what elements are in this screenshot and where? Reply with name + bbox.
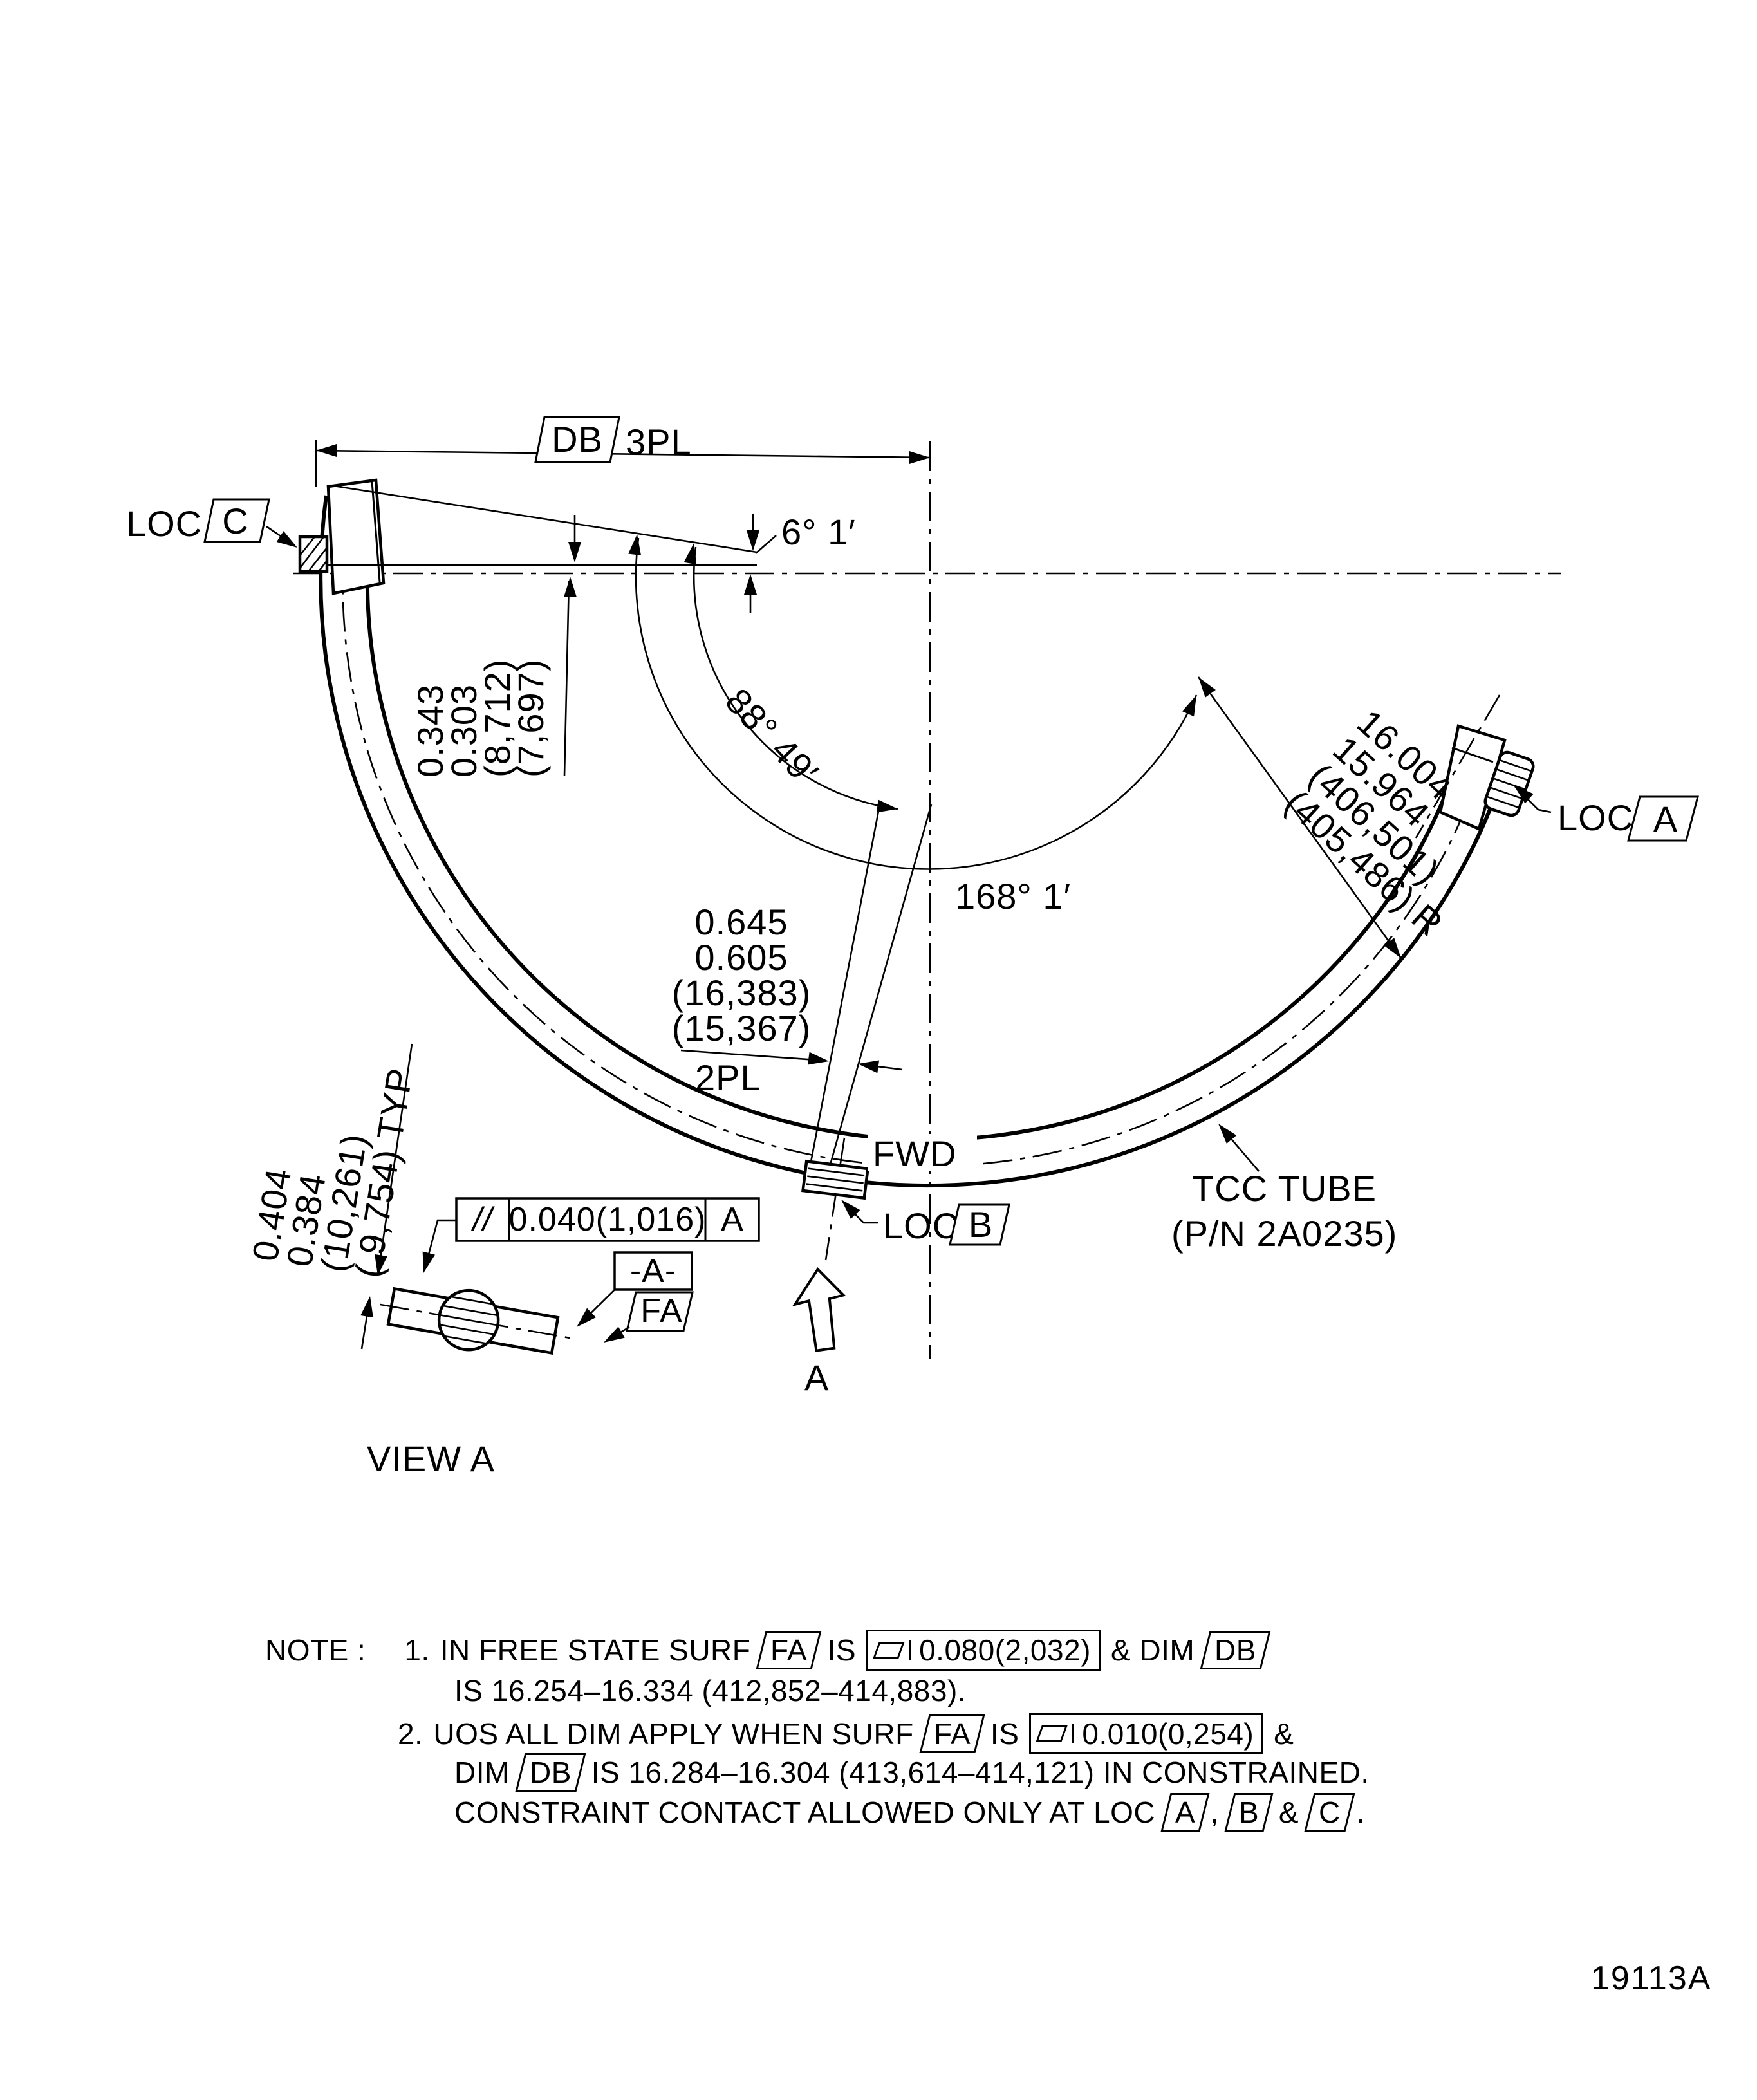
fcf-datum-letter: A	[721, 1201, 744, 1238]
note-line-3: 2. UOS ALL DIM APPLY WHEN SURF FA IS 0.0…	[398, 1713, 1294, 1754]
note-1-number: 1.	[404, 1633, 429, 1668]
gap-dimension: 0.343 0.303 (8,712) (7,697)	[410, 515, 581, 777]
slot-dim-line2: 0.605	[694, 937, 788, 978]
flatness-fcf-1: 0.080(2,032)	[866, 1630, 1101, 1671]
radius-upper-arrowhead	[1193, 673, 1216, 698]
db-dimension-line	[316, 451, 930, 458]
flag-b-letter: B	[969, 1204, 993, 1245]
engineering-drawing-page: { "figure_id": "19113A", "labels": { "db…	[0, 0, 1757, 2100]
slot-places-label: 2PL	[695, 1057, 761, 1098]
fa-flag-inline: FA	[756, 1631, 822, 1669]
fwd-label: FWD	[873, 1133, 957, 1174]
loc-c-end: LOC C	[126, 480, 757, 593]
slot-dimension: 0.645 0.605 (16,383) (15,367) 2PL	[672, 902, 902, 1098]
loc-c-flange	[328, 480, 384, 593]
loc-b-label: LOC	[883, 1205, 959, 1246]
wall-dim-up-arrowhead	[360, 1295, 376, 1317]
note-2-dim: DIM	[454, 1755, 510, 1790]
figure-number: 19113A	[1591, 1959, 1711, 1998]
svg-text:(7,697): (7,697)	[510, 659, 551, 777]
angle-168-start-arrowhead	[628, 534, 644, 555]
view-a-title: VIEW A	[367, 1438, 495, 1479]
flatness-symbol	[873, 1642, 904, 1659]
flag-c-letter: C	[222, 501, 248, 541]
view-direction-arrow	[793, 1268, 848, 1352]
angle-6-up-arrowhead	[744, 574, 757, 595]
part-number: (P/N 2A0235)	[1171, 1213, 1397, 1254]
loc-a-end: LOC A	[1416, 695, 1698, 841]
note-line-5: CONSTRAINT CONTACT ALLOWED ONLY AT LOC A…	[454, 1793, 1365, 1832]
angle-6-dimension: 6° 1′	[744, 512, 856, 613]
loc-c-flag-inline: C	[1305, 1793, 1355, 1832]
loc-a-label: LOC	[1557, 797, 1633, 838]
gap-up-arrowhead	[564, 577, 577, 597]
db-flag-inline-2: DB	[515, 1753, 586, 1792]
slot-dim-line1: 0.645	[694, 902, 788, 942]
loc-c-leader-arrowhead	[277, 531, 301, 553]
note-2-comma: ,	[1210, 1795, 1218, 1830]
view-a-detail: 0.404 0.384 (10,261) ( 9,754) TYP // 0.0…	[245, 1044, 848, 1479]
note-1-mid: & DIM	[1111, 1633, 1195, 1668]
fwd-marker: FWD	[868, 1133, 977, 1174]
fcf-leader-arrowhead	[417, 1252, 435, 1275]
flatness-value-1: 0.080(2,032)	[911, 1631, 1099, 1669]
flatness-symbol-2	[1036, 1725, 1068, 1742]
fcf-tolerance-value: 0.040(1,016)	[509, 1201, 707, 1238]
slot-dim-line3: (16,383)	[672, 972, 812, 1013]
fcf-parallel-symbol: //	[471, 1201, 495, 1238]
note-2-text: UOS ALL DIM APPLY WHEN SURF	[433, 1716, 913, 1751]
angle-6-down-arrowhead	[747, 530, 759, 551]
angle-168-arc	[636, 538, 1196, 869]
svg-text:88° 49′: 88° 49′	[718, 680, 826, 793]
angle-88-dimension: 88° 49′	[684, 542, 899, 815]
loc-b-contact-pad	[803, 1161, 868, 1198]
fa-flag-inline-2: FA	[919, 1714, 985, 1753]
slot-dim-line4: (15,367)	[672, 1008, 812, 1048]
note-1-text: IN FREE STATE SURF	[440, 1633, 751, 1668]
angle-168-end-arrowhead	[1182, 692, 1202, 716]
flag-a-letter: A	[1653, 799, 1678, 839]
flatness-fcf-2: 0.010(0,254)	[1029, 1713, 1263, 1754]
loc-c-contact-pad	[300, 537, 327, 571]
note-2-amp: &	[1274, 1716, 1294, 1751]
note-line-4: DIM DB IS 16.284–16.304 (413,614–414,121…	[454, 1753, 1370, 1792]
angle-6-label: 6° 1′	[781, 512, 856, 552]
note-line-1: NOTE : 1. IN FREE STATE SURF FA IS 0.080…	[265, 1630, 1266, 1671]
gap-extension-line	[564, 581, 569, 776]
note-line-2: IS 16.254–16.334 (412,852–414,883).	[454, 1673, 966, 1708]
db-flag-inline: DB	[1200, 1631, 1271, 1669]
note-1-continued: IS 16.254–16.334 (412,852–414,883).	[454, 1673, 966, 1708]
loc-a-flag-inline: A	[1161, 1793, 1210, 1832]
note-2-amp2: &	[1279, 1795, 1299, 1830]
note-2-number: 2.	[398, 1716, 423, 1751]
loc-c-label: LOC	[126, 503, 202, 544]
loc-b-radial-centerline	[826, 1138, 844, 1260]
note-2-constraint-text: CONSTRAINT CONTACT ALLOWED ONLY AT LOC	[454, 1795, 1155, 1830]
slot-left-arrowhead	[808, 1052, 830, 1068]
loc-b-flag-inline: B	[1224, 1793, 1273, 1832]
wall-dimension-text: 0.404 0.384 (10,261) ( 9,754) TYP	[245, 1049, 421, 1281]
gap-down-arrowhead	[568, 542, 581, 562]
end-plane-tilted-line	[330, 485, 757, 552]
angle-88-label: 88° 49′	[718, 680, 826, 793]
db-flag-label: DB	[552, 419, 603, 460]
db-left-arrowhead	[316, 444, 337, 457]
view-a-tube-segment	[375, 1276, 576, 1368]
gap-dimension-text: 0.343 0.303 (8,712) (7,697)	[410, 659, 551, 777]
part-callout: TCC TUBE (P/N 2A0235)	[1171, 1120, 1397, 1254]
note-2-continued: IS 16.284–16.304 (413,614–414,121) IN CO…	[591, 1755, 1370, 1790]
flatness-value-2: 0.010(0,254)	[1074, 1715, 1261, 1752]
angle-168-label: 168° 1′	[955, 876, 1071, 916]
note-label: NOTE :	[265, 1633, 366, 1668]
angle-88-start-arrowhead	[684, 542, 700, 564]
db-places-label: 3PL	[626, 422, 692, 462]
fa-leader-arrowhead	[600, 1326, 625, 1348]
angle-6-leader	[756, 535, 776, 553]
note-2-is: IS	[990, 1716, 1019, 1751]
datum-a-label: -A-	[630, 1252, 676, 1290]
view-direction-letter: A	[804, 1357, 829, 1398]
note-2-period: .	[1357, 1795, 1365, 1830]
part-name: TCC TUBE	[1192, 1168, 1377, 1209]
db-right-arrowhead	[909, 451, 930, 464]
fa-flag-label: FA	[640, 1292, 683, 1330]
db-dimension: DB 3PL	[316, 417, 930, 487]
note-1-is: IS	[828, 1633, 856, 1668]
